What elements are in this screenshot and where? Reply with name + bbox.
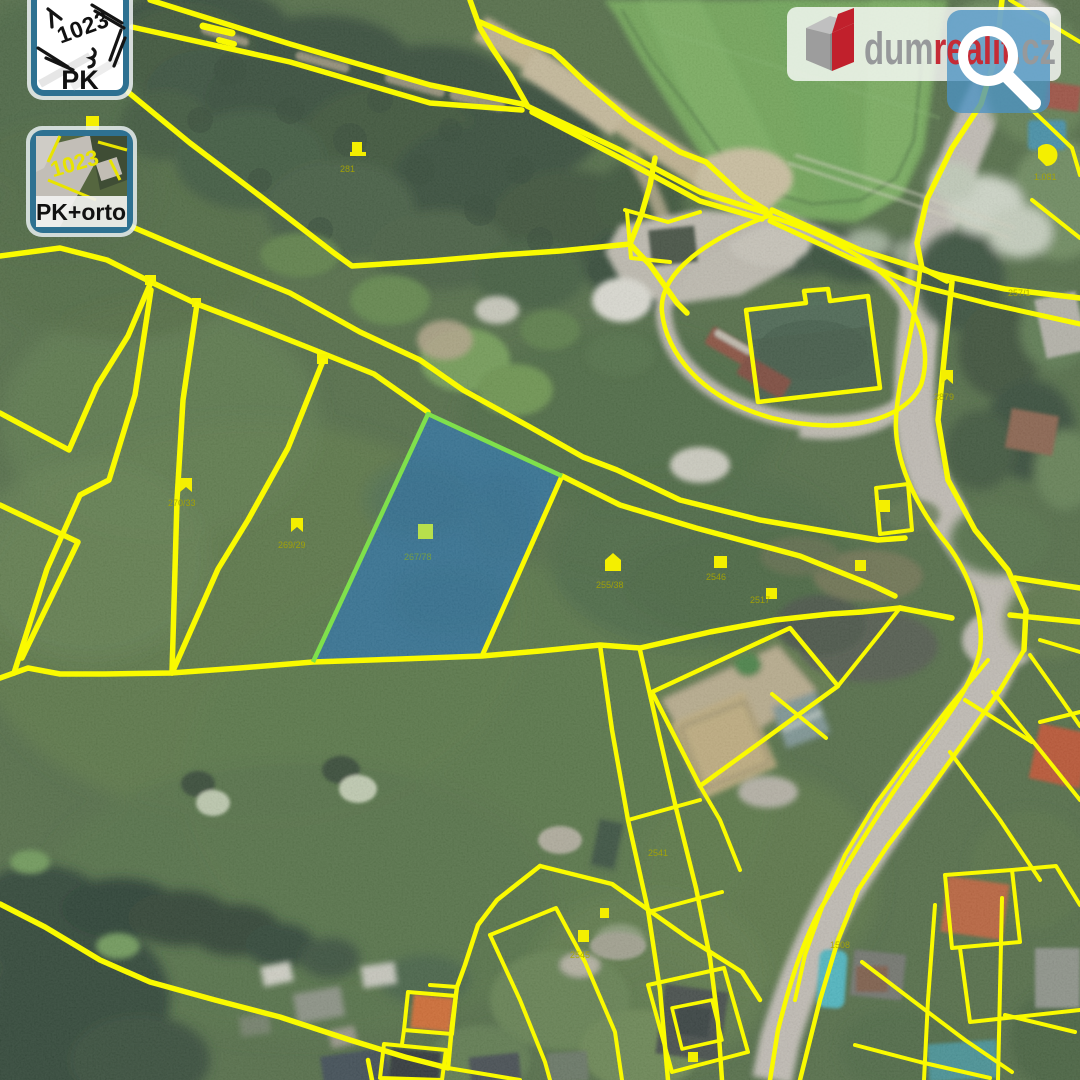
- svg-text:1.081: 1.081: [1034, 172, 1057, 182]
- svg-text:270/33: 270/33: [168, 498, 196, 508]
- svg-text:2517: 2517: [750, 595, 770, 605]
- svg-text:PK+orto: PK+orto: [36, 199, 126, 225]
- svg-text:257/1: 257/1: [1008, 288, 1031, 298]
- svg-text:1508: 1508: [830, 940, 850, 950]
- svg-text:2541: 2541: [648, 848, 668, 858]
- svg-text:2546: 2546: [706, 572, 726, 582]
- svg-text:267/78: 267/78: [404, 552, 432, 562]
- svg-text:2879: 2879: [934, 392, 954, 402]
- svg-text:269/29: 269/29: [278, 540, 306, 550]
- svg-text:281: 281: [340, 164, 355, 174]
- svg-text:2545: 2545: [570, 950, 590, 960]
- svg-text:PK: PK: [61, 65, 99, 95]
- svg-text:255/38: 255/38: [596, 580, 624, 590]
